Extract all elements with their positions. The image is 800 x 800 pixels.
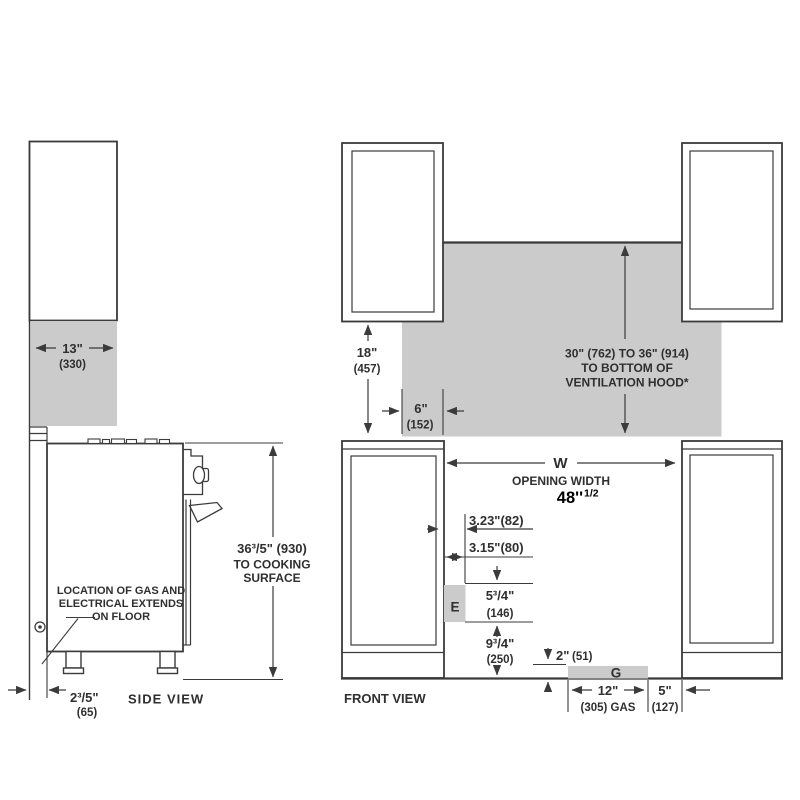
range-leg bbox=[160, 652, 175, 669]
opening-width-fraction: 1/2 bbox=[584, 488, 599, 500]
oven-door bbox=[183, 500, 222, 646]
gas-connection-symbol bbox=[35, 622, 45, 632]
opening-letter: W bbox=[553, 455, 568, 472]
dim-wall-gap: 2³/5" (65) bbox=[8, 652, 99, 719]
electrical-floor-mm: (250) bbox=[487, 654, 514, 666]
range-foot bbox=[158, 668, 178, 674]
gas-offset-inches: 5" bbox=[658, 683, 671, 698]
gas-height-mm: (51) bbox=[572, 651, 593, 663]
electrical-height-inches: 5³/4" bbox=[486, 588, 515, 603]
range-leg bbox=[66, 652, 81, 669]
front-base-cabinet-left bbox=[342, 441, 444, 678]
counter-dim-mm: (457) bbox=[354, 364, 381, 376]
opening-width-value: 48'' bbox=[557, 489, 583, 507]
range-installation-diagram-page: 13" (330) bbox=[0, 0, 800, 800]
burner-grate bbox=[103, 440, 110, 444]
burner-grate bbox=[145, 439, 157, 444]
range-legs bbox=[64, 652, 178, 674]
hood-clearance-line1: 30" (762) TO 36" (914) bbox=[565, 347, 689, 361]
side-upper-cabinet bbox=[30, 142, 118, 321]
gas-offset-mm: (127) bbox=[652, 702, 679, 714]
cabinet-outline bbox=[342, 143, 443, 322]
height-dim-text2: SURFACE bbox=[243, 571, 300, 585]
control-panel bbox=[183, 450, 209, 495]
hood-clearance-line3: VENTILATION HOOD* bbox=[565, 376, 688, 390]
burner-grate bbox=[88, 439, 100, 444]
dim-gas-location: 12" (305) GAS 5" (127) bbox=[568, 680, 710, 714]
electrical-floor-inches: 9³/4" bbox=[486, 636, 515, 651]
gas-note-line3: ON FLOOR bbox=[92, 611, 150, 623]
front-upper-cabinet-left bbox=[342, 143, 443, 322]
control-knob bbox=[194, 467, 205, 484]
gas-height-inches: 2" bbox=[556, 648, 569, 663]
gas-width-mm: (305) GAS bbox=[581, 702, 636, 714]
dim-opening-width: W OPENING WIDTH 48'' 1/2 bbox=[447, 455, 675, 507]
wall-gap-mm-label: (65) bbox=[77, 707, 98, 719]
gas-note-line2: ELECTRICAL EXTENDS bbox=[59, 598, 183, 610]
dim-electrical-floor: 9³/4" (250) bbox=[486, 626, 515, 675]
hood-clearance-line2: TO BOTTOM OF bbox=[581, 361, 673, 375]
wall-trim bbox=[30, 427, 48, 443]
burner-grates bbox=[88, 439, 170, 444]
overhang-inches: 6" bbox=[414, 401, 427, 416]
electrical-offset-1-label: 3.23"(82) bbox=[469, 513, 524, 528]
electrical-height-mm: (146) bbox=[487, 608, 514, 620]
cabinet-outline bbox=[682, 143, 782, 322]
wall-gap-inches-label: 2³/5" bbox=[70, 690, 99, 705]
front-vent-zone bbox=[402, 243, 722, 437]
connection-dot bbox=[38, 625, 42, 629]
front-base-cabinet-right bbox=[682, 441, 782, 678]
front-view: 18" (457) 6" (152) 30" (762) TO 36" (914… bbox=[341, 143, 783, 714]
gas-width-inches: 12" bbox=[598, 683, 619, 698]
range-foot bbox=[64, 668, 84, 674]
side-view-title: SIDE VIEW bbox=[128, 692, 204, 707]
side-view: 13" (330) bbox=[8, 141, 311, 719]
oven-handle bbox=[190, 503, 223, 523]
cabinet-outline bbox=[342, 441, 444, 678]
overhang-mm: (152) bbox=[407, 420, 434, 432]
dim-cabinet-to-counter: 18" (457) bbox=[354, 325, 381, 433]
cabinet-depth-mm-label: (330) bbox=[59, 359, 86, 371]
front-view-title: FRONT VIEW bbox=[344, 691, 426, 706]
height-dim-text1: TO COOKING bbox=[233, 558, 310, 572]
height-dim-value: 36³/5" (930) bbox=[237, 541, 307, 556]
gas-label: G bbox=[611, 666, 622, 681]
front-upper-cabinet-right bbox=[682, 143, 782, 322]
cabinet-depth-inches-label: 13" bbox=[62, 341, 83, 356]
dim-electrical-height: E 5³/4" (146) bbox=[444, 566, 533, 622]
electrical-label: E bbox=[450, 600, 459, 615]
gas-inlet-box bbox=[568, 666, 648, 679]
side-vent-zone bbox=[31, 321, 118, 426]
burner-grate bbox=[160, 440, 170, 444]
burner-grate bbox=[127, 440, 137, 444]
electrical-offset-2-label: 3.15"(80) bbox=[469, 540, 524, 555]
gas-note-line1: LOCATION OF GAS AND bbox=[57, 585, 185, 597]
counter-dim-inches: 18" bbox=[357, 345, 378, 360]
dim-electrical-offset-2: 3.15"(80) bbox=[444, 540, 533, 557]
range-installation-diagram: 13" (330) bbox=[0, 0, 800, 800]
opening-width-label: OPENING WIDTH bbox=[512, 474, 610, 488]
burner-grate bbox=[112, 439, 125, 444]
gas-box: G bbox=[568, 666, 648, 681]
